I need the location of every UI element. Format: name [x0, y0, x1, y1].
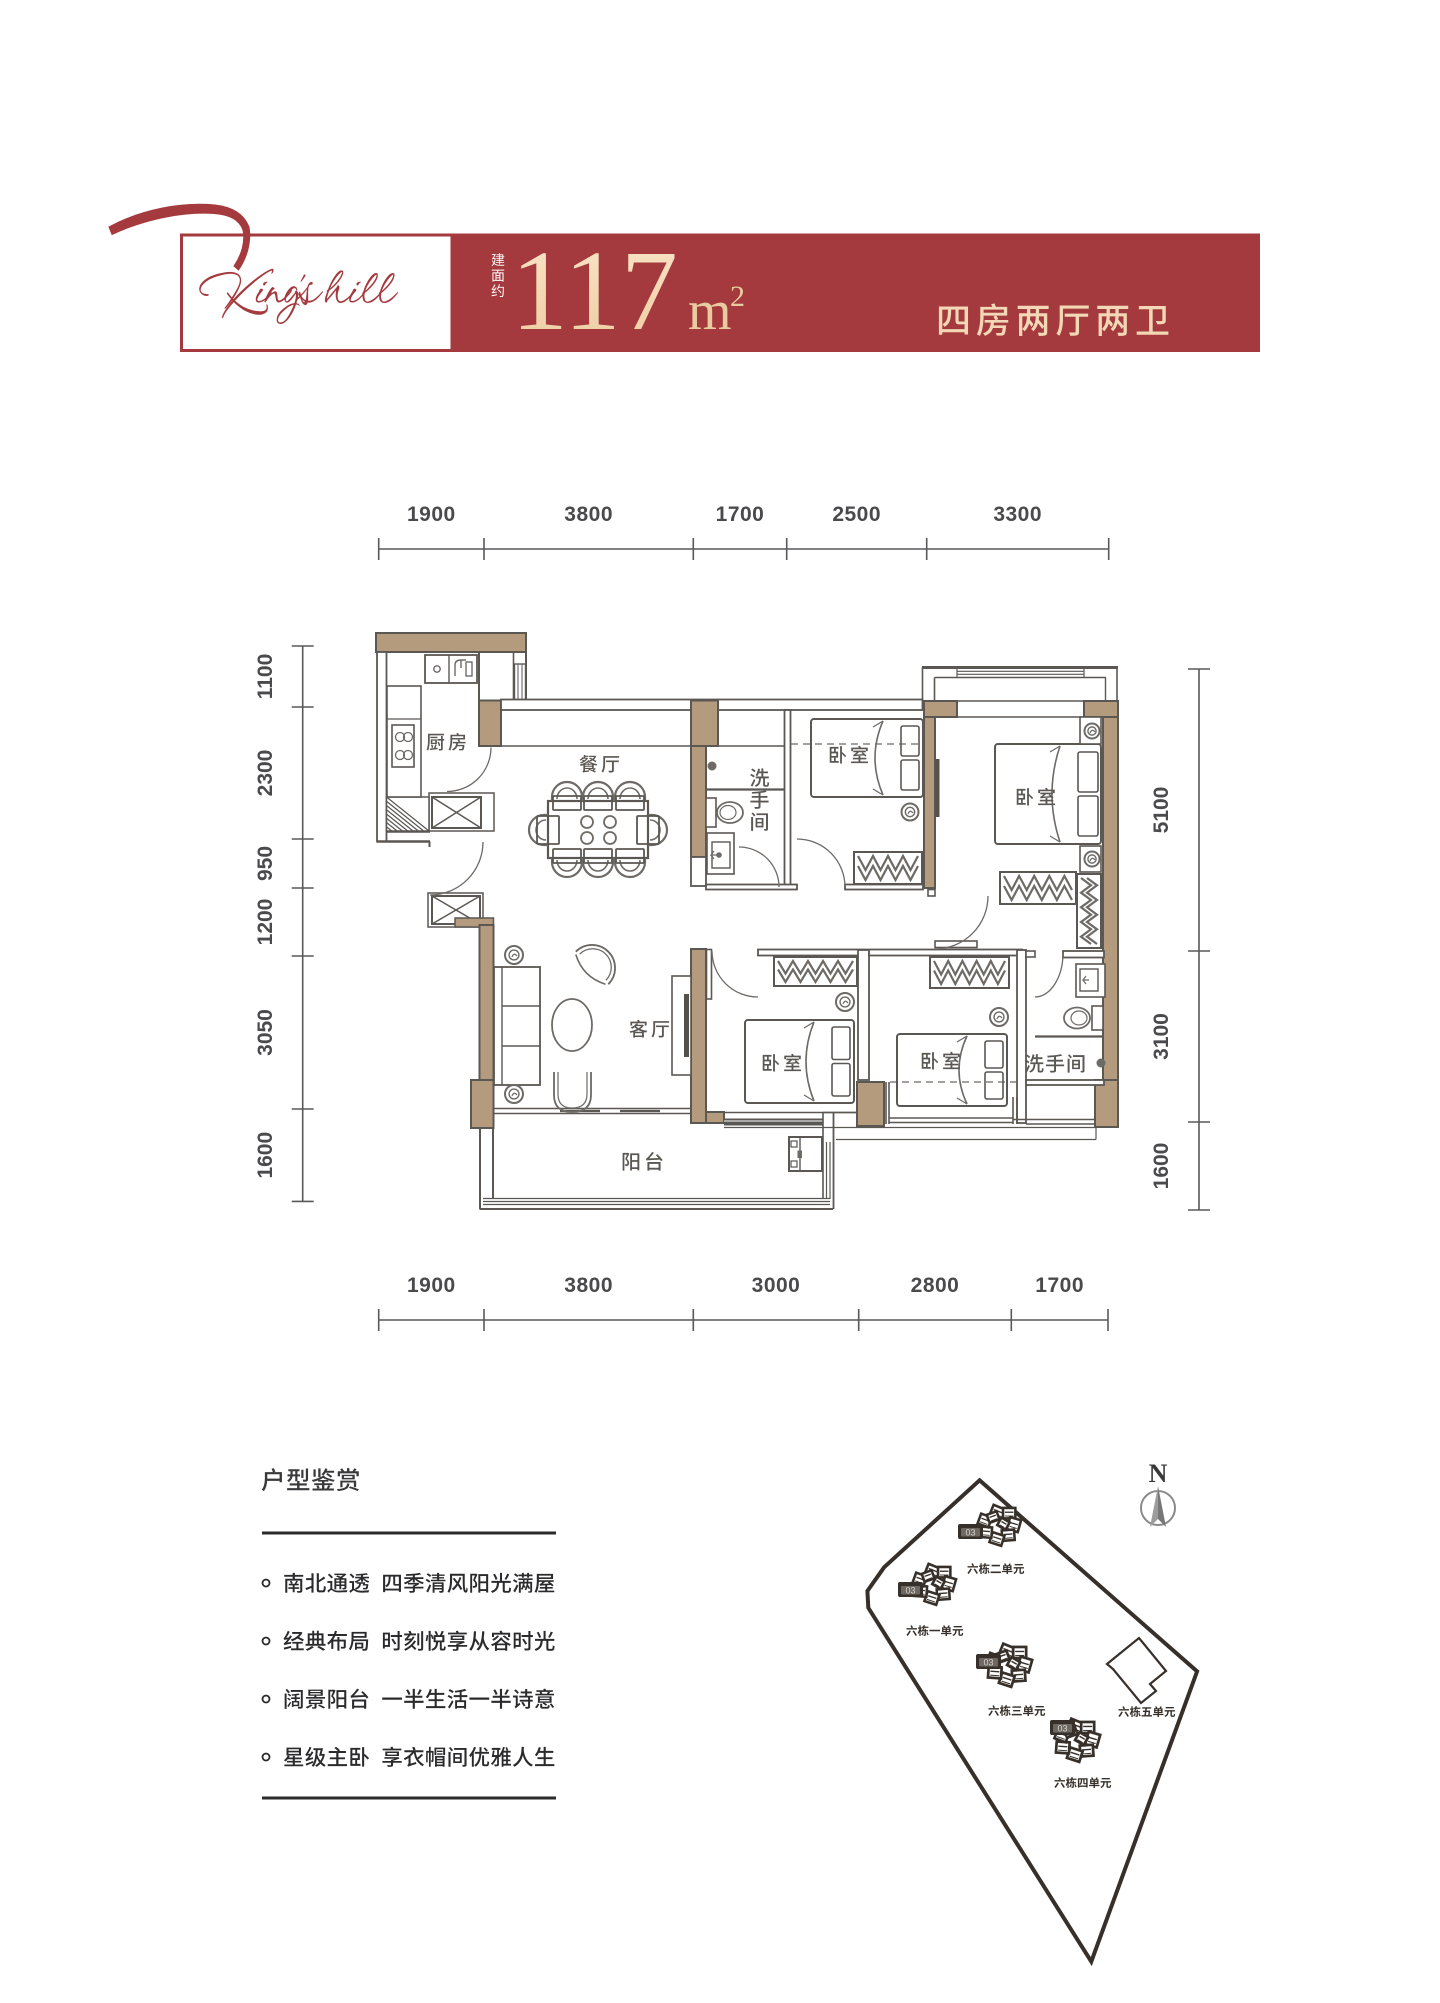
svg-text:03: 03 — [1057, 1724, 1067, 1734]
svg-text:1600: 1600 — [254, 1132, 277, 1179]
svg-text:1900: 1900 — [407, 503, 456, 526]
svg-text:1700: 1700 — [716, 503, 765, 526]
svg-text:1200: 1200 — [254, 899, 277, 946]
svg-text:1600: 1600 — [1150, 1143, 1173, 1190]
svg-text:2: 2 — [730, 280, 745, 313]
svg-text:03: 03 — [983, 1658, 993, 1668]
svg-text:117: 117 — [511, 227, 678, 354]
svg-text:03: 03 — [965, 1528, 975, 1538]
svg-text:3000: 3000 — [752, 1274, 801, 1297]
svg-text:3800: 3800 — [564, 1274, 613, 1297]
svg-text:950: 950 — [254, 846, 277, 881]
svg-text:m: m — [688, 280, 732, 342]
svg-text:N: N — [1149, 1459, 1168, 1488]
svg-text:2500: 2500 — [832, 503, 881, 526]
svg-text:3050: 3050 — [254, 1009, 277, 1056]
svg-text:2800: 2800 — [911, 1274, 960, 1297]
svg-text:1900: 1900 — [407, 1274, 456, 1297]
svg-text:03: 03 — [905, 1586, 915, 1596]
svg-text:3800: 3800 — [564, 503, 613, 526]
svg-text:3100: 3100 — [1150, 1013, 1173, 1060]
svg-text:2300: 2300 — [254, 750, 277, 797]
svg-text:1700: 1700 — [1035, 1274, 1084, 1297]
svg-text:5100: 5100 — [1150, 787, 1173, 834]
svg-text:3300: 3300 — [993, 503, 1042, 526]
svg-text:1100: 1100 — [254, 654, 277, 700]
